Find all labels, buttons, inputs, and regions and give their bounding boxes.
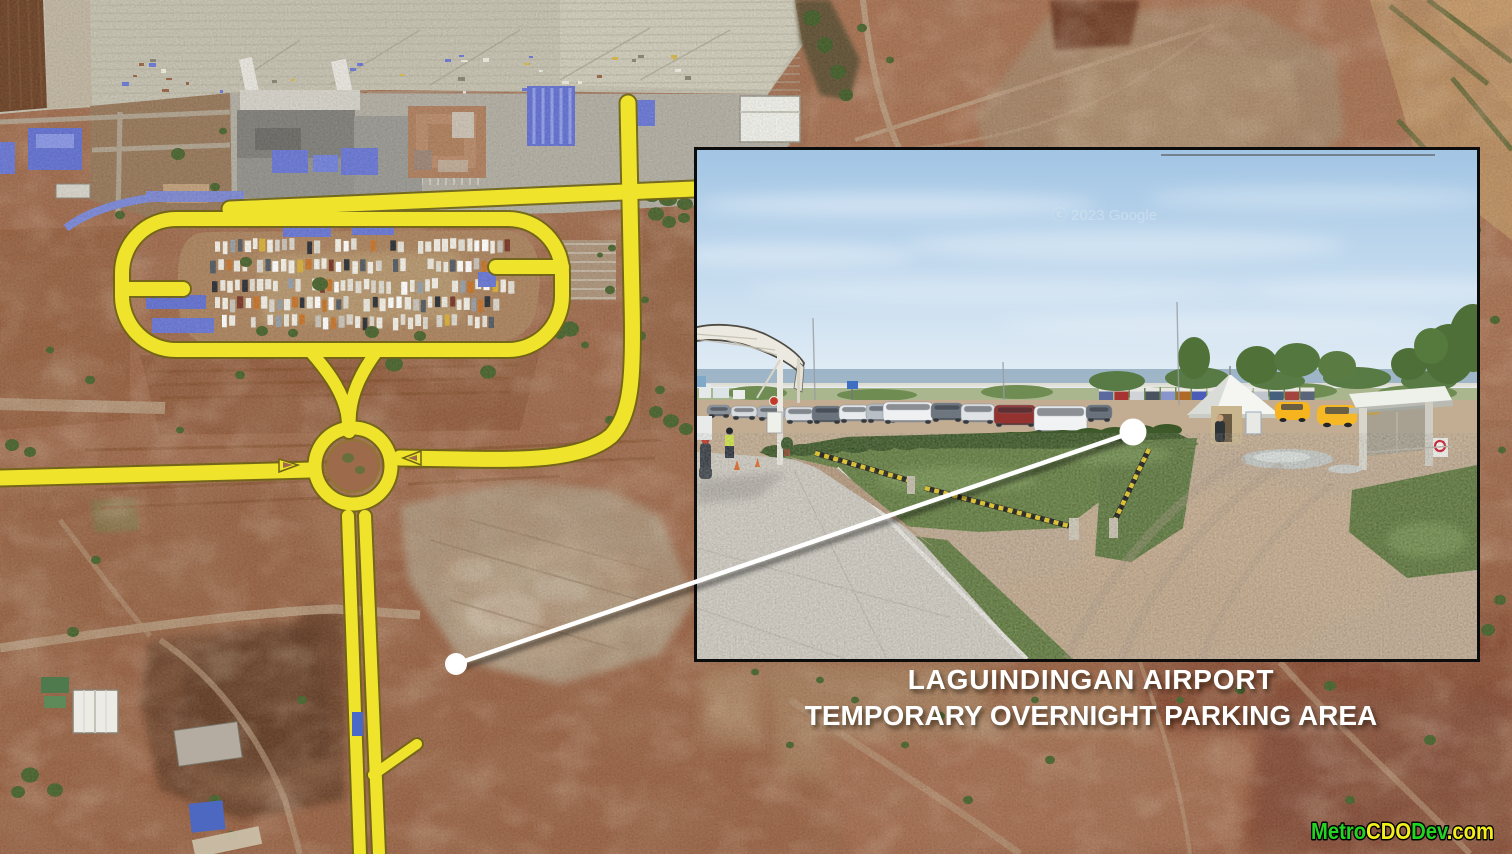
svg-text:LAGUINDINGAN AIRPORT: LAGUINDINGAN AIRPORT (908, 664, 1275, 695)
svg-text:ⓒ 2023 Google: ⓒ 2023 Google (1052, 207, 1157, 224)
svg-text:TEMPORARY OVERNIGHT PARKING AR: TEMPORARY OVERNIGHT PARKING AREA (805, 700, 1377, 731)
svg-text:MetroCDODev.com: MetroCDODev.com (1311, 818, 1494, 844)
